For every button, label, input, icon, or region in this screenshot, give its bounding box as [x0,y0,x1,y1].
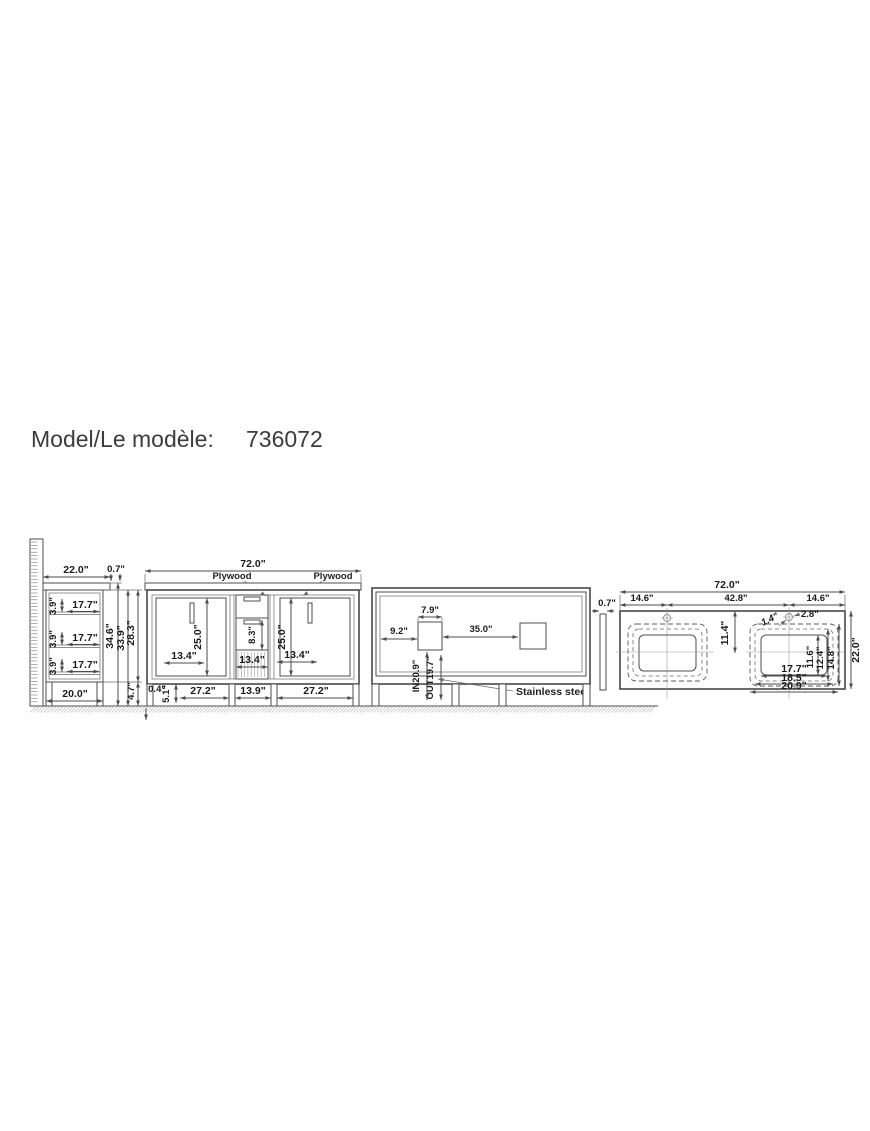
dim-shelf-depth-1: 17.7" [72,599,97,611]
dim-door-height-right: 25.0" [276,624,288,649]
dim-shelf-gap-1: 3.9" [48,597,59,615]
dim-faucet-spacing: 42.8" [725,593,748,604]
material-label-back: Stainless steel [516,686,589,698]
dim-leg-height: 4.7" [126,682,137,700]
technical-drawing: Model/Le modèle: 736072 22.0" 0.7" 3.9" [0,0,870,1131]
dim-outlet-span: 35.0" [470,624,493,635]
back-leg-2 [452,684,459,706]
dim-inlet-offset: 9.2" [390,626,408,637]
front-leg-4 [353,684,359,706]
dim-top-width: 72.0" [714,579,739,591]
dim-section-middle: 13.9" [240,685,265,697]
page-title: Model/Le modèle: [31,426,214,452]
dim-counter-depth-top: 22.0" [850,637,862,662]
dim-inlet-width: 7.9" [421,605,439,616]
dim-drain-in: IN20.9" [411,660,422,693]
dim-counter-depth: 22.0" [63,564,88,576]
dim-shelf-gap-3: 3.9" [48,657,59,675]
dim-shelf-gap-2: 3.9" [48,630,59,648]
top-view: 0.7" 72.0" 14.6" 42.8" 14.6" 11.4" [592,579,862,699]
dim-base-depth: 20.0" [62,688,87,700]
back-leg-1 [372,684,379,706]
dim-drawer-width: 13.4" [239,654,264,666]
backsplash-strip [600,614,606,690]
front-leg-3 [271,684,277,706]
back-leg-4 [583,684,590,706]
dim-counter-thickness: 0.7" [107,564,125,575]
dim-faucet-left: 14.6" [631,593,654,604]
material-label-right: Plywood [313,571,352,582]
material-label-left: Plywood [212,571,251,582]
dim-front-width: 72.0" [240,558,265,570]
dim-section-left: 27.2" [190,685,215,697]
dim-sink-depth-outer: 14.8" [826,647,837,670]
dim-splash-thickness: 0.7" [598,598,616,609]
dim-door-height-left: 25.0" [192,624,204,649]
dim-section-right: 27.2" [303,685,328,697]
dim-shelf-depth-2: 17.7" [72,632,97,644]
wall-section [30,539,43,706]
title-block: Model/Le modèle: 736072 [31,426,323,452]
dim-cabinet-height: 28.3" [125,620,137,645]
dim-front-leg-height: 5.1" [161,685,172,703]
side-countertop [43,583,110,590]
page-background [0,0,870,1131]
dim-sink-depth-middle: 12.4" [815,647,826,670]
front-countertop [145,583,361,590]
model-number: 736072 [246,426,323,452]
dim-shelf-depth-3: 17.7" [72,659,97,671]
dim-sink-center: 11.4" [719,621,731,646]
dim-door-width-left: 13.4" [171,650,196,662]
spec-sheet-page: Model/Le modèle: 736072 22.0" 0.7" 3.9" [0,0,870,1131]
dim-sink-width-outer: 20.9" [781,680,806,692]
back-leg-3 [499,684,506,706]
front-leg-2 [229,684,235,706]
door-left [156,598,226,676]
dim-hole-offset: 2.8" [801,609,819,620]
dim-faucet-right: 14.6" [807,593,830,604]
dim-drain-out: OUT19.7" [425,656,436,699]
dim-drawer-height: 8.3" [247,626,258,644]
dim-door-width-right: 13.4" [284,649,309,661]
